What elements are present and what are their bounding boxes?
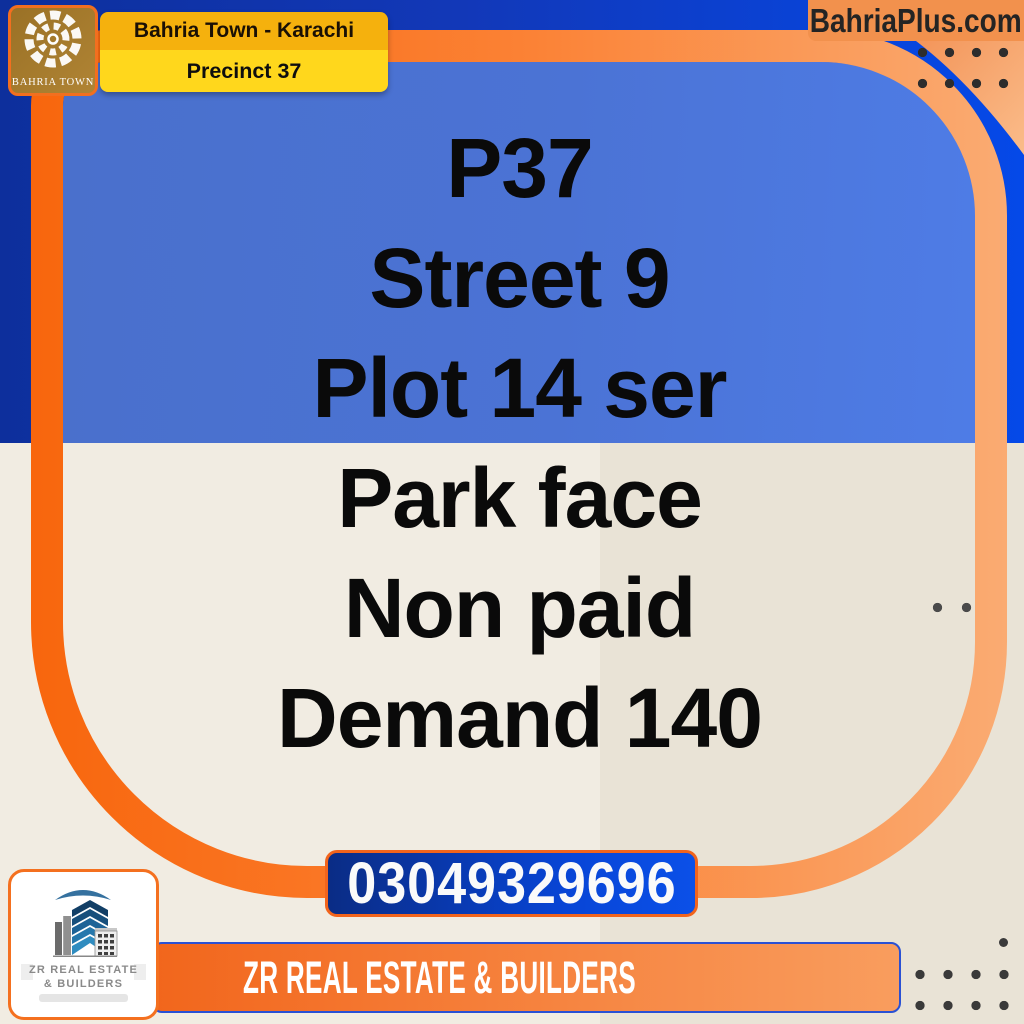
listing-line-plot-code: P37 — [63, 113, 976, 223]
bahria-mandala-icon — [11, 8, 95, 72]
listing-details: P37 Street 9 Plot 14 ser Park face Non p… — [63, 113, 976, 773]
bahria-logo-caption: BAHRIA TOWN — [11, 77, 95, 88]
agency-logo-icon: ZR REAL ESTATE & BUILDERS — [11, 872, 156, 1017]
location-banner: Bahria Town - Karachi Precinct 37 — [100, 12, 388, 92]
agency-banner: ZR REAL ESTATE & BUILDERS — [152, 942, 901, 1013]
listing-line-feature: Park face — [63, 443, 976, 553]
listing-line-plot: Plot 14 ser — [63, 333, 976, 443]
listing-line-payment: Non paid — [63, 553, 976, 663]
logo-arc-icon — [55, 890, 111, 900]
flyer-canvas: P37 Street 9 Plot 14 ser Park face Non p… — [0, 0, 1024, 1024]
dot-grid-middle-right — [923, 593, 981, 622]
phone-button[interactable]: 03049329696 — [325, 850, 698, 917]
dot — [999, 938, 1008, 947]
banner-subtitle: Precinct 37 — [100, 50, 388, 92]
website-link[interactable]: BahriaPlus.com — [810, 2, 1022, 40]
dot-grid-bottom-right — [906, 959, 1018, 1021]
agency-logo-line2: & BUILDERS — [44, 978, 123, 990]
agency-logo-line1: ZR REAL ESTATE — [29, 964, 138, 976]
banner-title: Bahria Town - Karachi — [100, 12, 388, 50]
agency-banner-label: ZR REAL ESTATE & BUILDERS — [243, 952, 636, 1004]
phone-number: 03049329696 — [347, 850, 676, 917]
listing-line-demand: Demand 140 — [63, 663, 976, 773]
agency-logo-box: ZR REAL ESTATE & BUILDERS — [8, 869, 159, 1020]
dot-grid-top-right — [909, 37, 1017, 99]
listing-line-street: Street 9 — [63, 223, 976, 333]
website-box[interactable]: BahriaPlus.com — [808, 0, 1024, 41]
bahria-town-logo: BAHRIA TOWN — [8, 5, 98, 96]
